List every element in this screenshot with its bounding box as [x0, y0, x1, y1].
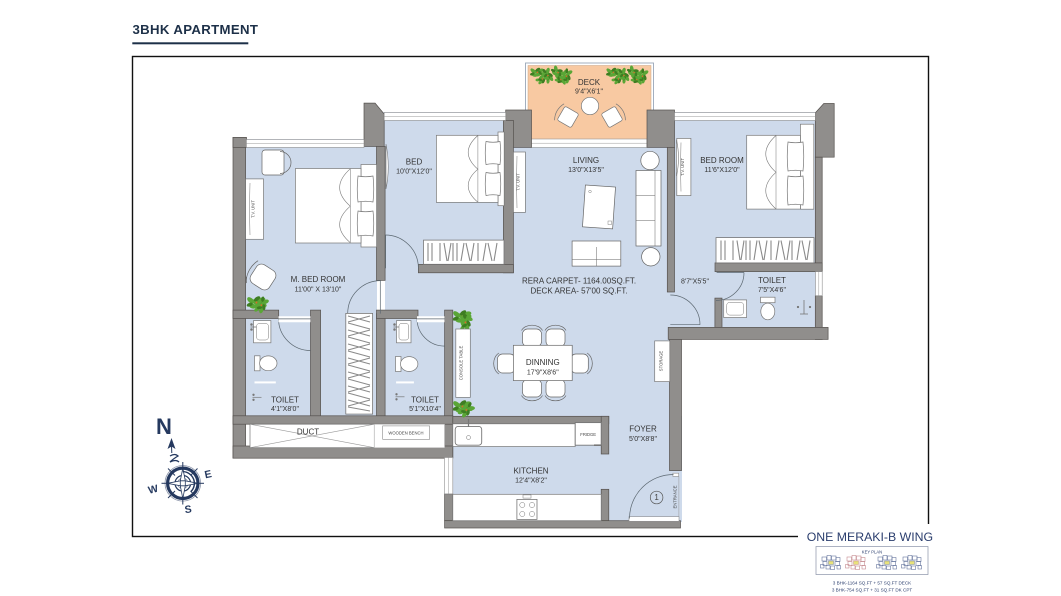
svg-text:WOODEN BENCH: WOODEN BENCH: [388, 430, 423, 435]
svg-text:DINNING: DINNING: [526, 358, 560, 367]
svg-text:N: N: [156, 414, 172, 439]
svg-text:1: 1: [654, 493, 659, 502]
svg-text:8'7"X5'5": 8'7"X5'5": [681, 279, 709, 286]
svg-text:T.V. UNIT: T.V. UNIT: [251, 200, 256, 218]
svg-text:5'1"X10'4": 5'1"X10'4": [409, 406, 441, 413]
svg-text:11'00" X 13'10": 11'00" X 13'10": [295, 287, 342, 294]
svg-text:STORAGE: STORAGE: [658, 351, 663, 372]
svg-text:T.V. UNIT: T.V. UNIT: [680, 158, 685, 176]
svg-text:10'0"X12'0": 10'0"X12'0": [396, 169, 432, 176]
svg-text:BED ROOM: BED ROOM: [700, 156, 744, 165]
svg-text:T.V. UNIT: T.V. UNIT: [516, 173, 521, 191]
svg-text:CONSOLE TABLE: CONSOLE TABLE: [458, 346, 463, 381]
svg-text:11'6"X12'0": 11'6"X12'0": [704, 167, 740, 174]
svg-text:9'4"X6'1": 9'4"X6'1": [575, 89, 603, 96]
svg-text:BED: BED: [406, 158, 423, 167]
svg-text:LIVING: LIVING: [573, 156, 599, 165]
svg-text:3 BHK-754 SQ.FT + 31 SQ.FT DK: 3 BHK-754 SQ.FT + 31 SQ.FT DK CPT: [832, 588, 913, 593]
svg-text:17'9"X8'6": 17'9"X8'6": [527, 370, 559, 377]
svg-text:KITCHEN: KITCHEN: [513, 467, 548, 476]
svg-text:RERA CARPET- 1164.00SQ.FT.: RERA CARPET- 1164.00SQ.FT.: [522, 277, 636, 286]
svg-text:FOYER: FOYER: [629, 425, 657, 434]
svg-text:13'0"X13'5": 13'0"X13'5": [568, 167, 604, 174]
svg-text:FRIDGE: FRIDGE: [580, 432, 596, 437]
svg-text:ENTRANCE: ENTRANCE: [672, 485, 677, 508]
svg-text:ONE MERAKI-B WING: ONE MERAKI-B WING: [807, 530, 933, 544]
svg-text:12'4"X8'2": 12'4"X8'2": [515, 478, 547, 485]
svg-text:7'5"X4'6": 7'5"X4'6": [758, 287, 786, 294]
svg-text:5'0"X8'8": 5'0"X8'8": [629, 436, 657, 443]
svg-text:3 BHK-1164 SQ.FT + 57 SQ.FT DE: 3 BHK-1164 SQ.FT + 57 SQ.FT DECK: [833, 581, 912, 586]
svg-text:3BHK APARTMENT: 3BHK APARTMENT: [133, 22, 259, 37]
svg-text:DUCT: DUCT: [297, 428, 319, 437]
svg-text:DECK AREA- 57'00 SQ.FT.: DECK AREA- 57'00 SQ.FT.: [530, 287, 627, 296]
svg-text:TOILET: TOILET: [758, 276, 786, 285]
svg-text:KEY PLAN: KEY PLAN: [862, 550, 882, 555]
svg-text:TOILET: TOILET: [271, 396, 299, 405]
svg-text:DECK: DECK: [578, 78, 601, 87]
svg-text:TOILET: TOILET: [411, 396, 439, 405]
svg-text:4'1"X8'0": 4'1"X8'0": [271, 406, 299, 413]
svg-text:M. BED ROOM: M. BED ROOM: [291, 275, 346, 284]
